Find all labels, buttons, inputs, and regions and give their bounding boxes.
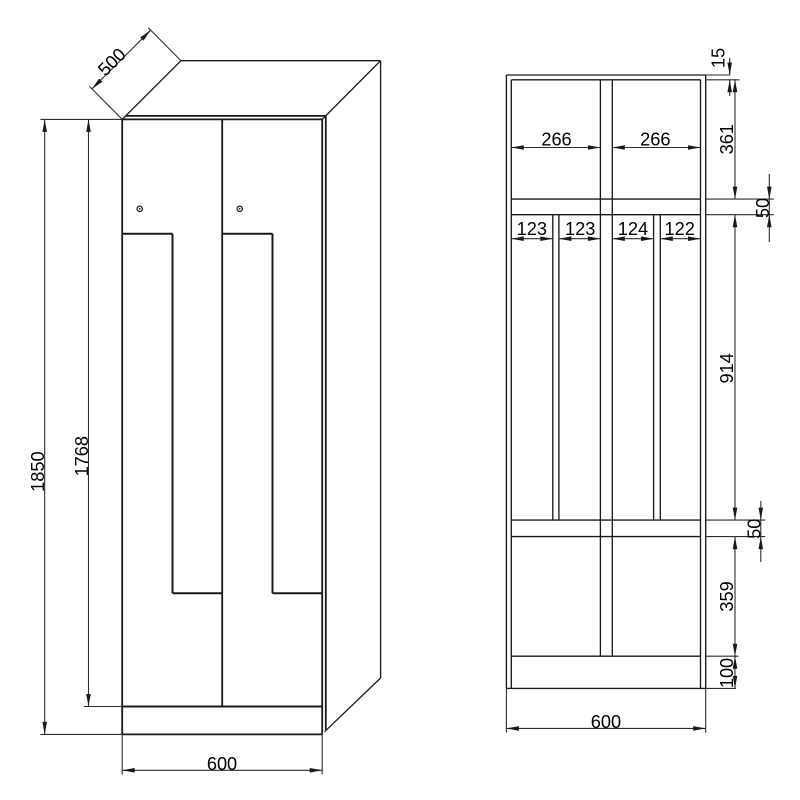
svg-text:914: 914 <box>717 353 737 383</box>
svg-text:361: 361 <box>717 124 737 154</box>
svg-text:122: 122 <box>665 219 695 239</box>
svg-text:266: 266 <box>640 130 670 150</box>
svg-text:1850: 1850 <box>28 451 48 491</box>
svg-text:15: 15 <box>708 48 728 68</box>
svg-text:1768: 1768 <box>72 436 92 476</box>
svg-text:359: 359 <box>717 581 737 611</box>
svg-text:100: 100 <box>717 658 737 688</box>
svg-text:600: 600 <box>207 754 237 774</box>
svg-text:600: 600 <box>591 712 621 732</box>
svg-text:266: 266 <box>541 130 571 150</box>
svg-text:50: 50 <box>745 519 765 539</box>
svg-text:124: 124 <box>618 219 648 239</box>
svg-text:123: 123 <box>565 219 595 239</box>
svg-text:50: 50 <box>753 198 773 218</box>
svg-text:500: 500 <box>94 44 130 80</box>
svg-text:123: 123 <box>517 219 547 239</box>
